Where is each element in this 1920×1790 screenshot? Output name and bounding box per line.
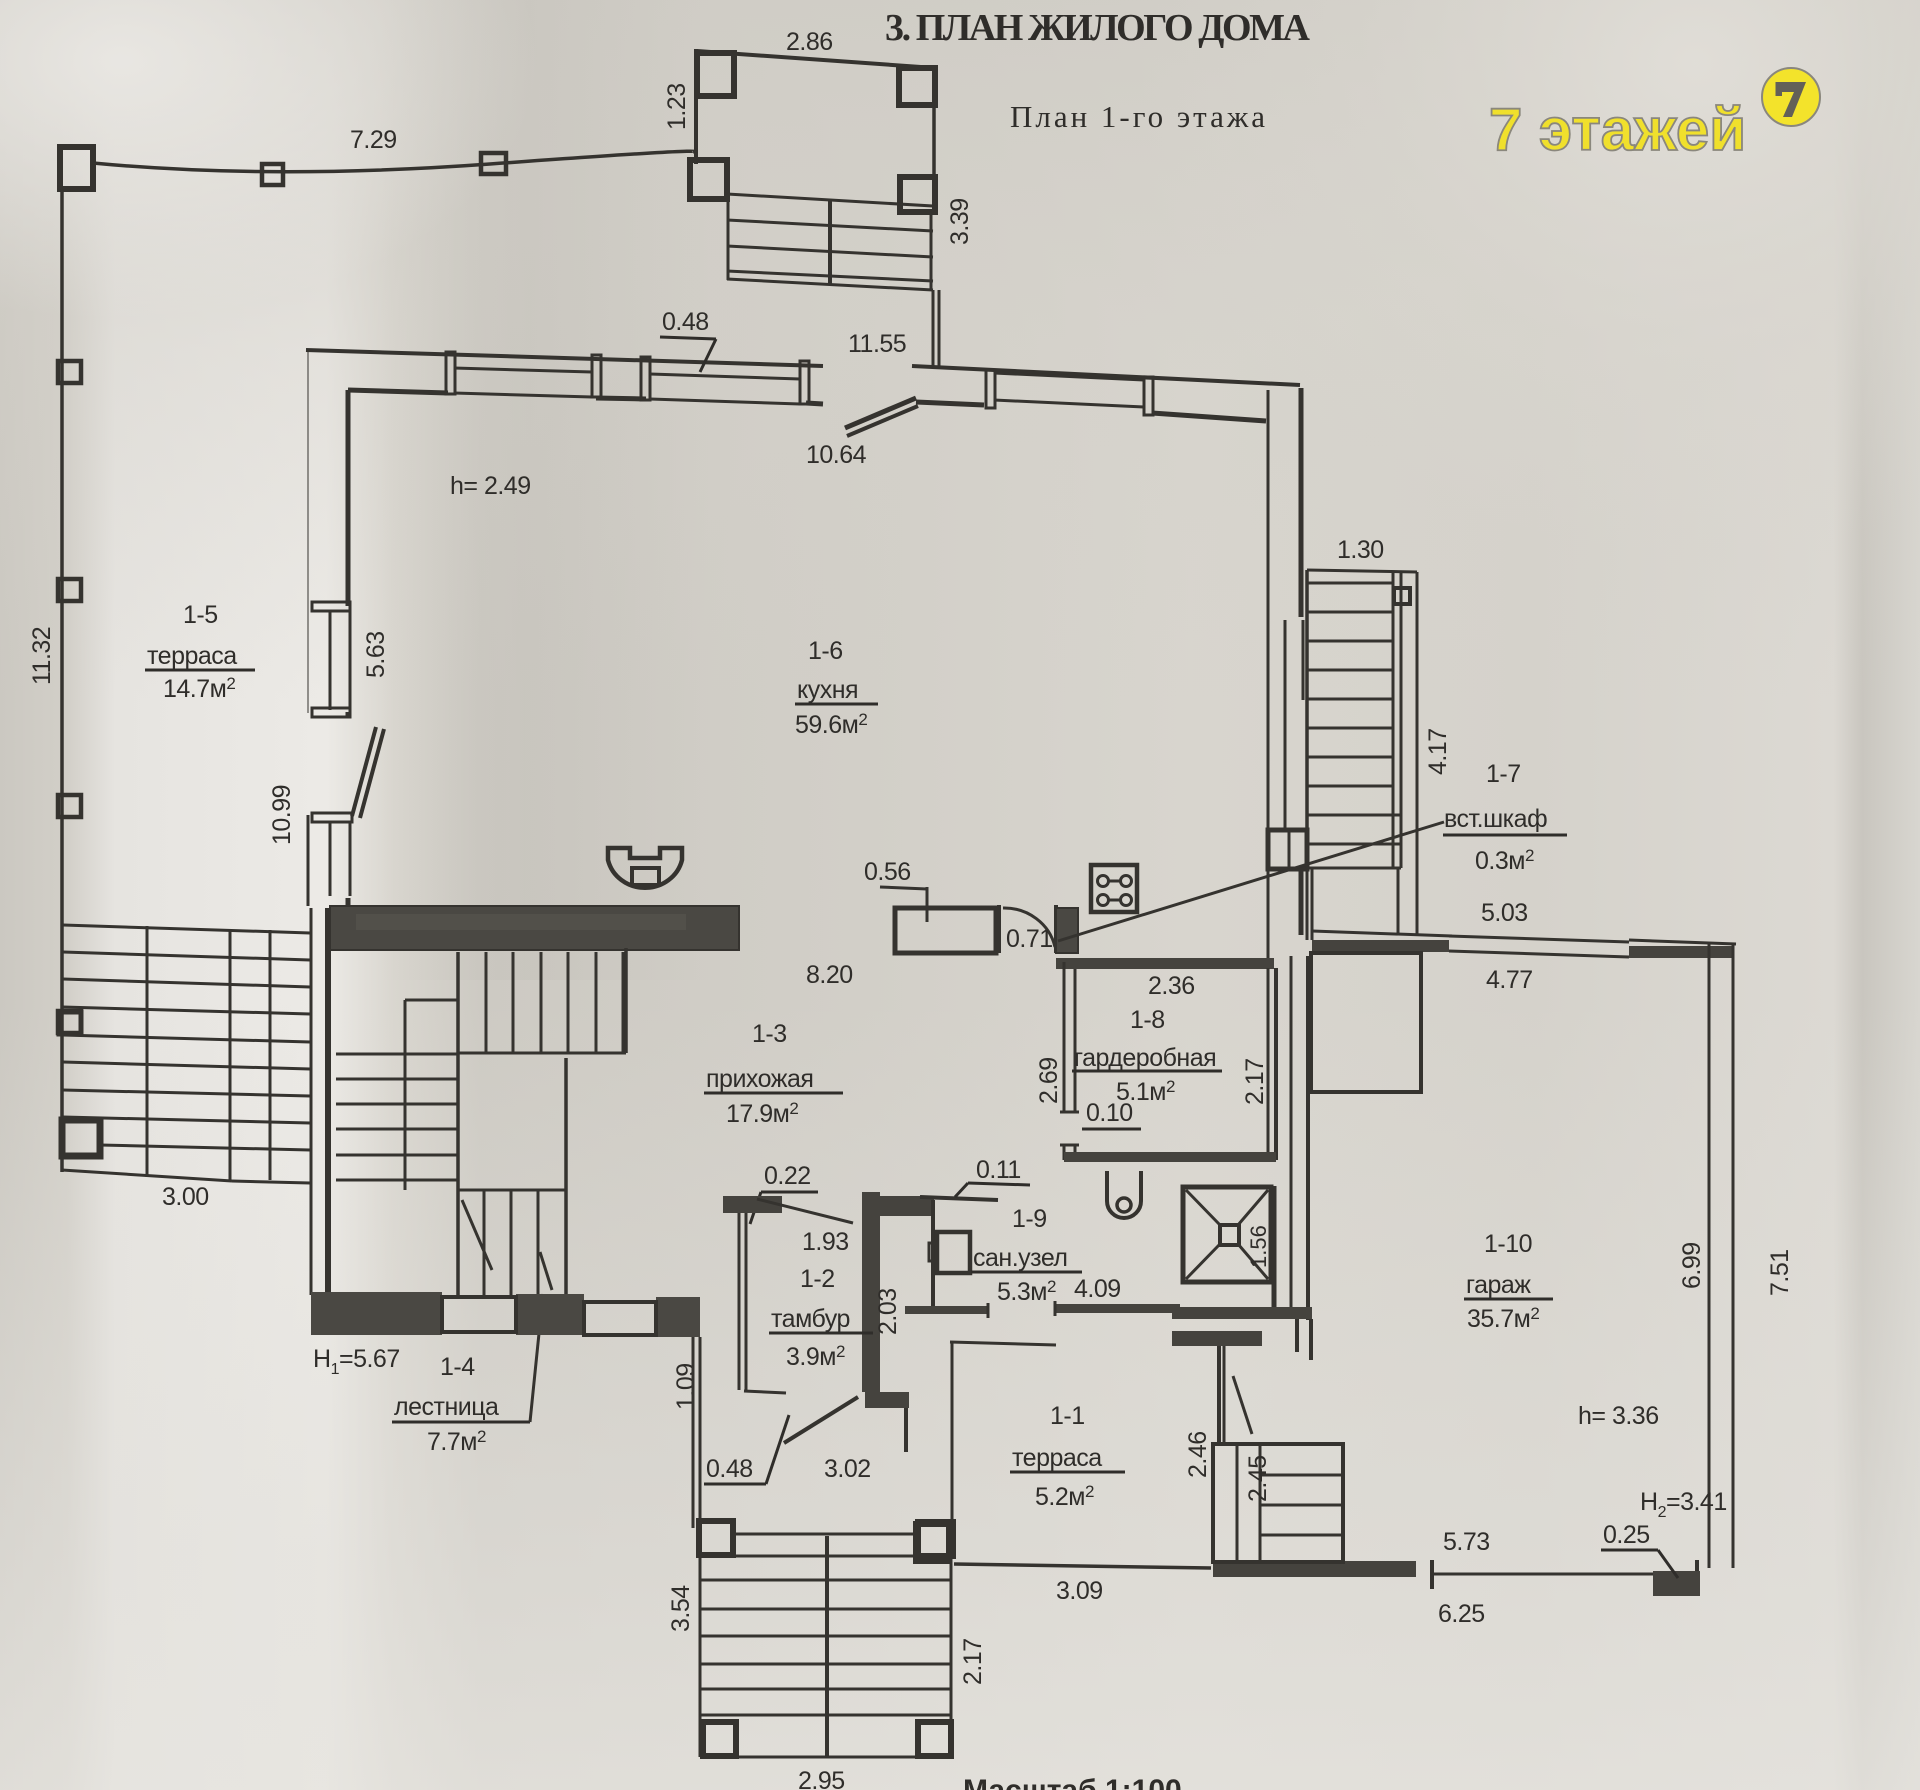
svg-text:1.09: 1.09 [672,1363,700,1410]
svg-text:5.73: 5.73 [1443,1528,1490,1556]
svg-text:h= 3.36: h= 3.36 [1578,1402,1659,1430]
svg-text:17.9м2: 17.9м2 [726,1099,798,1128]
svg-text:1-2: 1-2 [800,1265,835,1293]
svg-text:0.11: 0.11 [976,1156,1021,1184]
svg-text:терраса: терраса [147,642,237,670]
svg-text:8.20: 8.20 [806,961,853,989]
svg-text:терраса: терраса [1012,1444,1102,1472]
svg-text:2.95: 2.95 [798,1767,845,1790]
svg-text:гараж: гараж [1466,1271,1531,1299]
svg-text:3.39: 3.39 [946,198,974,245]
svg-text:35.7м2: 35.7м2 [1467,1304,1539,1333]
svg-text:7.51: 7.51 [1766,1249,1794,1296]
svg-text:6.99: 6.99 [1678,1242,1706,1289]
svg-text:3.09: 3.09 [1056,1577,1103,1605]
svg-text:лестница: лестница [394,1393,499,1421]
svg-text:0.25: 0.25 [1603,1521,1650,1549]
svg-text:гардеробная: гардеробная [1074,1044,1216,1072]
svg-text:1-8: 1-8 [1130,1006,1165,1034]
svg-text:прихожая: прихожая [706,1065,813,1093]
svg-text:1-1: 1-1 [1050,1402,1085,1430]
svg-text:Масштаб 1:100: Масштаб 1:100 [963,1774,1182,1790]
svg-text:2.17: 2.17 [1241,1058,1269,1105]
svg-text:10.99: 10.99 [268,785,296,845]
svg-text:1-10: 1-10 [1484,1230,1532,1258]
svg-text:2.69: 2.69 [1035,1057,1063,1104]
svg-text:3.54: 3.54 [667,1585,695,1632]
svg-text:1-3: 1-3 [752,1020,787,1048]
svg-text:План 1-го этажа: План 1-го этажа [1010,99,1265,134]
svg-text:11.32: 11.32 [28,627,56,685]
svg-text:3.00: 3.00 [162,1183,209,1211]
svg-text:1.23: 1.23 [663,83,691,130]
svg-text:1-5: 1-5 [183,601,218,629]
svg-text:0.10: 0.10 [1086,1099,1133,1127]
svg-text:1-7: 1-7 [1486,760,1521,788]
svg-text:2.46: 2.46 [1184,1431,1212,1478]
svg-text:4.77: 4.77 [1486,966,1533,994]
svg-text:вст.шкаф: вст.шкаф [1444,805,1547,833]
svg-text:0.56: 0.56 [864,858,911,886]
svg-text:4.17: 4.17 [1424,728,1452,775]
svg-text:6.25: 6.25 [1438,1600,1485,1628]
svg-text:кухня: кухня [797,676,858,704]
svg-text:1-6: 1-6 [808,637,843,665]
svg-text:0.71: 0.71 [1006,925,1053,953]
svg-text:h= 2.49: h= 2.49 [450,472,531,500]
svg-text:5.03: 5.03 [1481,899,1528,927]
svg-text:1.56: 1.56 [1246,1225,1271,1268]
svg-text:7 этажей: 7 этажей [1489,96,1746,163]
svg-text:2.45: 2.45 [1244,1455,1272,1502]
svg-text:5.63: 5.63 [362,631,390,678]
svg-text:10.64: 10.64 [806,441,867,469]
svg-text:1.30: 1.30 [1337,536,1384,564]
svg-text:3. ПЛАН ЖИЛОГО ДОМА: 3. ПЛАН ЖИЛОГО ДОМА [885,7,1311,49]
svg-text:11.55: 11.55 [848,330,906,358]
svg-text:2.03: 2.03 [874,1288,902,1335]
svg-text:2.17: 2.17 [959,1638,987,1685]
svg-text:7.29: 7.29 [350,126,397,154]
svg-text:4.09: 4.09 [1074,1275,1121,1303]
svg-text:0.48: 0.48 [662,308,709,336]
svg-text:0.22: 0.22 [764,1162,811,1190]
svg-text:14.7м2: 14.7м2 [163,674,235,703]
svg-text:1-9: 1-9 [1012,1205,1047,1233]
svg-text:0.48: 0.48 [706,1455,753,1483]
svg-text:3.02: 3.02 [824,1455,871,1483]
svg-text:сан.узел: сан.узел [973,1244,1068,1272]
svg-text:2.36: 2.36 [1148,972,1195,1000]
svg-text:тамбур: тамбур [771,1305,850,1333]
svg-text:1.93: 1.93 [802,1228,849,1256]
svg-text:59.6м2: 59.6м2 [795,710,867,739]
svg-text:1-4: 1-4 [440,1353,475,1381]
svg-text:2.86: 2.86 [786,28,833,56]
